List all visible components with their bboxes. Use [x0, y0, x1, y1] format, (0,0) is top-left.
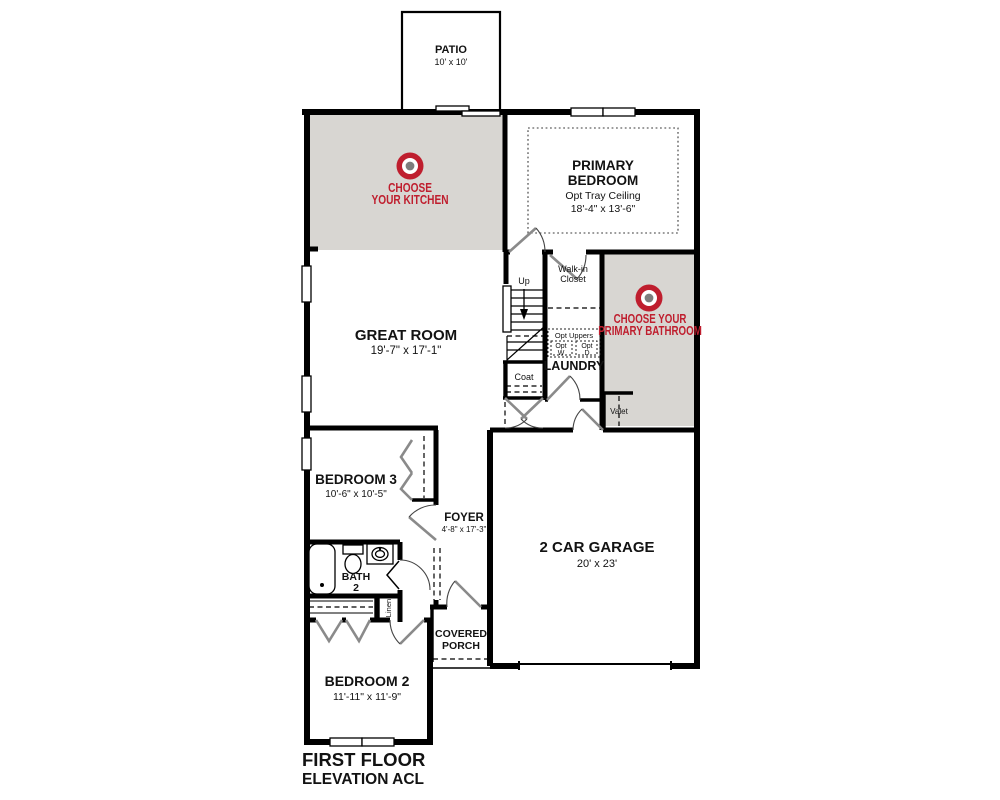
page-title: FIRST FLOOR [302, 749, 425, 770]
bedroom3-door [409, 517, 436, 540]
walkin-closet-label-1: Walk-in [558, 264, 588, 274]
bathtub-drain [320, 583, 324, 587]
opt-washer-label-2: W [558, 350, 565, 357]
page-subtitle: ELEVATION ACL [302, 771, 424, 788]
primary-bedroom-label-2: BEDROOM [568, 173, 639, 188]
bath2-fixtures [309, 544, 393, 594]
opt-washer-label-1: Opt [555, 343, 566, 350]
coat-label: Coat [514, 372, 534, 382]
garage-dims: 20' x 23' [577, 558, 617, 570]
stairs-up-label: Up [518, 276, 530, 286]
great-room-label: GREAT ROOM [355, 327, 457, 344]
bath2-fold-door [387, 561, 399, 589]
garage-entry-door-arc [573, 409, 582, 430]
laundry-label: LAUNDRY [544, 359, 605, 373]
primary-bedroom-door [509, 228, 536, 252]
linen-label: Linen [384, 599, 393, 617]
bedroom2-label: BEDROOM 2 [325, 673, 410, 689]
covered-porch-label-1: COVERED [435, 628, 487, 640]
primary-bath-overlay-line-2: PRIMARY BATHROOM [598, 325, 702, 338]
patio-label: PATIO [435, 44, 467, 56]
primary-bedroom-dims: 18'-4" x 13'-6" [571, 203, 636, 215]
front-door [455, 581, 481, 607]
primary-bedroom-label-1: PRIMARY [572, 158, 634, 173]
bedroom3-closet-bifold [401, 440, 412, 500]
coat-closet-door-right [521, 398, 543, 419]
opt-dryer-label-2: D [584, 350, 589, 357]
great-room-window [302, 376, 311, 412]
room-fills [310, 115, 694, 426]
foyer-dims: 4'-8" x 17'-3" [442, 525, 487, 534]
target-logo-center [645, 294, 654, 303]
front-door-arc [447, 581, 455, 607]
garage-door-line [519, 661, 671, 670]
primary-bedroom-note: Opt Tray Ceiling [565, 190, 640, 202]
foyer-label: FOYER [444, 512, 484, 524]
patio-slider-window [462, 111, 500, 116]
garage-label: 2 CAR GARAGE [539, 539, 654, 556]
bedroom3-label: BEDROOM 3 [315, 472, 397, 487]
bath2-door-arc [400, 560, 430, 590]
bedroom2-door [400, 620, 424, 644]
bedroom2-closet-bifold [316, 620, 370, 641]
toilet-tank [343, 545, 363, 554]
primary-bedroom-door-arc [536, 228, 545, 252]
sink-basin-inner [376, 551, 385, 558]
valet-label: Valet [610, 407, 628, 416]
laundry-door [547, 376, 570, 400]
primary-bath-area [604, 254, 694, 426]
opt-uppers-label: Opt Uppers [555, 331, 594, 340]
bedroom2-window [330, 738, 362, 746]
bedroom2-dims: 11'-11" x 11'-9" [333, 691, 401, 703]
stair-rail [503, 286, 511, 332]
bedroom2-window [362, 738, 394, 746]
coat-closet-door-left-arc [505, 419, 527, 428]
foyer-opening-dash [434, 548, 440, 600]
great-room-dims: 19'-7" x 17'-1" [371, 345, 442, 357]
bedroom3-dims: 10'-6" x 10'-5" [325, 489, 387, 500]
bedroom3-window [302, 438, 311, 470]
covered-porch-label-2: PORCH [442, 640, 480, 652]
patio-dims: 10' x 10' [435, 57, 468, 67]
coat-closet-shelf [506, 386, 542, 392]
great-room-window [302, 266, 311, 302]
sink-faucet [379, 548, 381, 550]
plan-title: FIRST FLOOR ELEVATION ACL [302, 749, 425, 788]
kitchen-overlay-line-2: YOUR KITCHEN [371, 193, 448, 207]
bath2-label-2: 2 [353, 582, 359, 594]
patio-slider-window [436, 106, 469, 111]
walkin-closet-label-2: Closet [560, 274, 586, 284]
opt-dryer-label-1: Opt [581, 343, 592, 350]
floor-plan-drawing: PATIO 10' x 10' PRIMARY BEDROOM Opt Tray… [0, 0, 1000, 800]
target-logo-center [406, 162, 415, 171]
bedroom2-door-arc [390, 620, 400, 644]
primary-bedroom-window [571, 108, 603, 116]
primary-bedroom-window [603, 108, 635, 116]
bedroom3-door-arc [409, 505, 436, 517]
laundry-door-arc [570, 376, 580, 400]
floor-plan-page: PATIO 10' x 10' PRIMARY BEDROOM Opt Tray… [0, 0, 1000, 800]
coat-closet-door-right-arc [521, 419, 543, 428]
